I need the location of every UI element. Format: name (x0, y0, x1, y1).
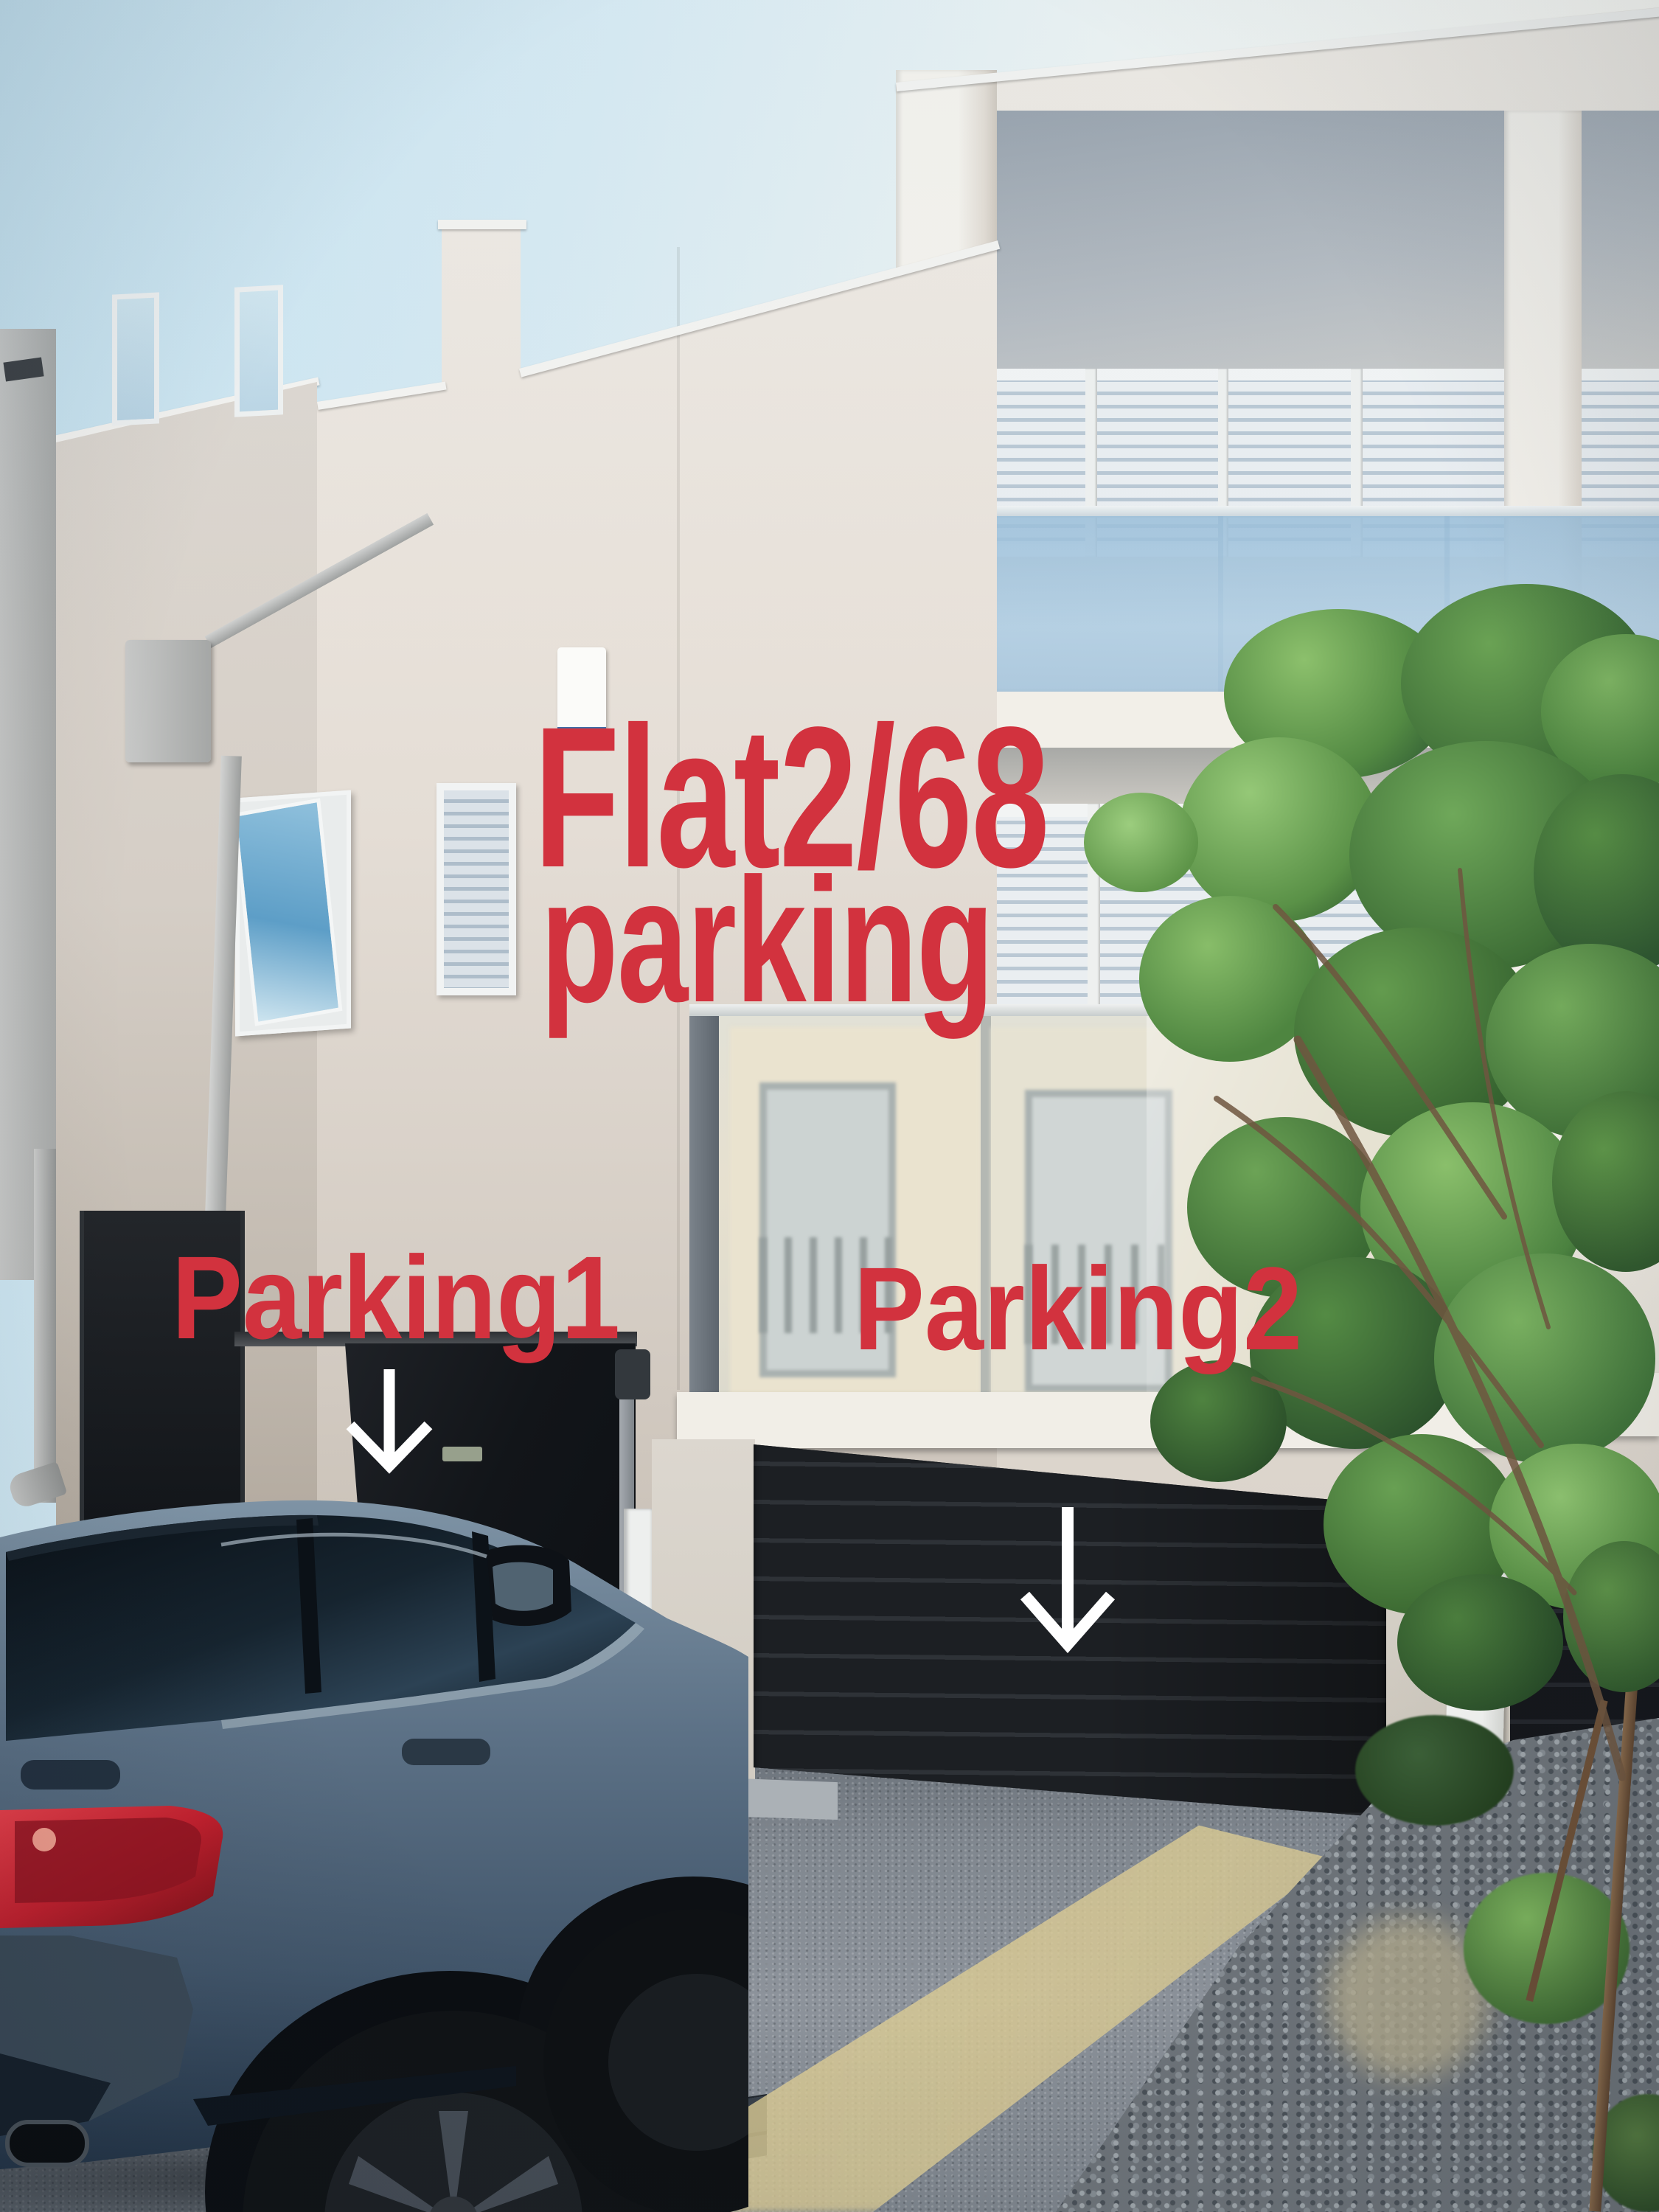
carport-keypad (442, 1447, 482, 1461)
left-top-window (112, 292, 159, 425)
parking2-label-text: Parking2 (854, 1250, 1302, 1368)
parking1-label: Parking1 (396, 1239, 894, 1357)
headline-parking-word: parking (767, 852, 1396, 1029)
parked-suv (0, 1493, 748, 2212)
carport-downpipe-elbow (615, 1349, 650, 1399)
parking2-label: Parking2 (1078, 1250, 1576, 1368)
downpipe-lower (34, 1149, 56, 1503)
townhouse-parking-photo: Flat2/68 parking Parking1 Parking2 (0, 0, 1659, 2212)
downpipe-hopper (125, 640, 211, 762)
down-arrow-parking1-icon (341, 1368, 437, 1475)
down-arrow-parking2-icon (1016, 1506, 1119, 1653)
pilaster-cap (438, 220, 526, 229)
centre-narrow-window (437, 783, 516, 995)
left-building-side-wall (0, 329, 56, 1280)
headline-parking-word-text: parking (540, 852, 993, 1029)
left-top-window (234, 285, 283, 417)
parking1-label-text: Parking1 (172, 1239, 620, 1357)
